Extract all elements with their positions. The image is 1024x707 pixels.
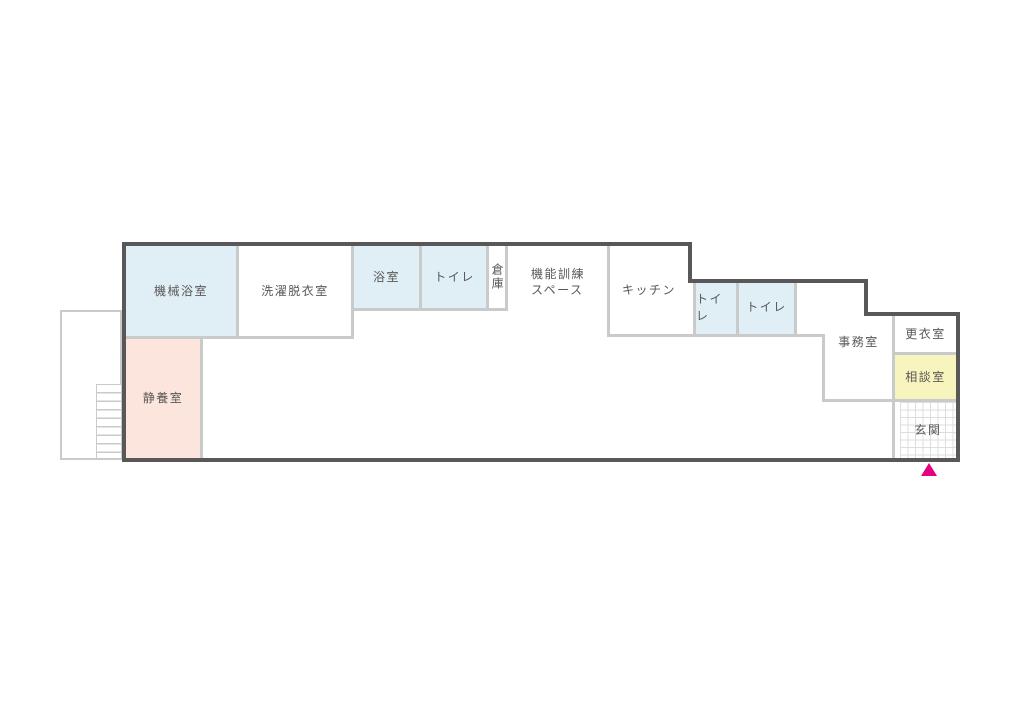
partition-line bbox=[693, 281, 696, 337]
room-rest: 静養室 bbox=[126, 339, 200, 458]
partition-line bbox=[607, 246, 610, 337]
room-label-toilet-right-1: トイレ bbox=[696, 291, 736, 323]
room-toilet-right-1: トイレ bbox=[696, 281, 736, 334]
room-label-rest: 静養室 bbox=[143, 390, 184, 406]
room-label-machine-bath: 機械浴室 bbox=[154, 283, 208, 299]
partition-line bbox=[124, 336, 354, 339]
wall-segment bbox=[122, 458, 960, 462]
partition-line bbox=[822, 399, 958, 402]
room-label-entrance: 玄関 bbox=[914, 422, 941, 438]
room-label-training-space: 機能訓練 スペース bbox=[531, 266, 585, 298]
partition-line bbox=[892, 316, 895, 458]
room-label-kitchen: キッチン bbox=[622, 282, 676, 298]
room-label-toilet-top: トイレ bbox=[434, 269, 475, 285]
room-label-changing: 更衣室 bbox=[905, 326, 946, 342]
entrance-marker-icon bbox=[921, 463, 937, 476]
partition-line bbox=[236, 246, 239, 338]
partition-line bbox=[486, 246, 489, 310]
room-laundry: 洗濯脱衣室 bbox=[239, 246, 351, 336]
partition-line bbox=[351, 308, 508, 311]
room-consultation: 相談室 bbox=[895, 355, 956, 399]
room-bath: 浴室 bbox=[354, 246, 419, 308]
stairs-icon bbox=[96, 384, 122, 459]
room-kitchen: キッチン bbox=[610, 246, 688, 335]
room-office: 事務室 bbox=[825, 312, 892, 372]
room-label-storage: 倉庫 bbox=[489, 263, 505, 291]
room-training-space: 機能訓練 スペース bbox=[508, 246, 608, 318]
partition-line bbox=[200, 337, 203, 458]
wall-segment bbox=[688, 242, 692, 283]
room-storage: 倉庫 bbox=[489, 246, 505, 308]
wall-segment bbox=[956, 312, 960, 462]
room-toilet-top: トイレ bbox=[422, 246, 487, 308]
wall-segment bbox=[122, 242, 126, 462]
wall-segment bbox=[864, 279, 868, 316]
partition-line bbox=[794, 281, 797, 337]
room-changing: 更衣室 bbox=[895, 316, 956, 352]
room-label-toilet-right-2: トイレ bbox=[746, 299, 787, 315]
partition-line bbox=[736, 281, 739, 337]
floor-plan: 機械浴室 洗濯脱衣室 浴室 トイレ 倉庫 機能訓練 スペース キッチン トイレ … bbox=[0, 0, 1024, 707]
wall-segment bbox=[688, 279, 868, 283]
room-label-bath: 浴室 bbox=[373, 269, 400, 285]
wall-segment bbox=[122, 242, 692, 246]
partition-line bbox=[505, 246, 508, 310]
partition-line bbox=[607, 334, 825, 337]
room-toilet-right-2: トイレ bbox=[739, 281, 794, 334]
partition-line bbox=[895, 352, 956, 355]
partition-line bbox=[351, 246, 354, 338]
room-label-laundry: 洗濯脱衣室 bbox=[261, 283, 329, 299]
room-label-office: 事務室 bbox=[838, 334, 879, 350]
room-label-consultation: 相談室 bbox=[905, 369, 946, 385]
room-entrance: 玄関 bbox=[900, 402, 956, 458]
partition-line bbox=[822, 334, 825, 402]
wall-segment bbox=[864, 312, 960, 316]
partition-line bbox=[419, 246, 422, 310]
room-machine-bath: 機械浴室 bbox=[126, 246, 236, 336]
